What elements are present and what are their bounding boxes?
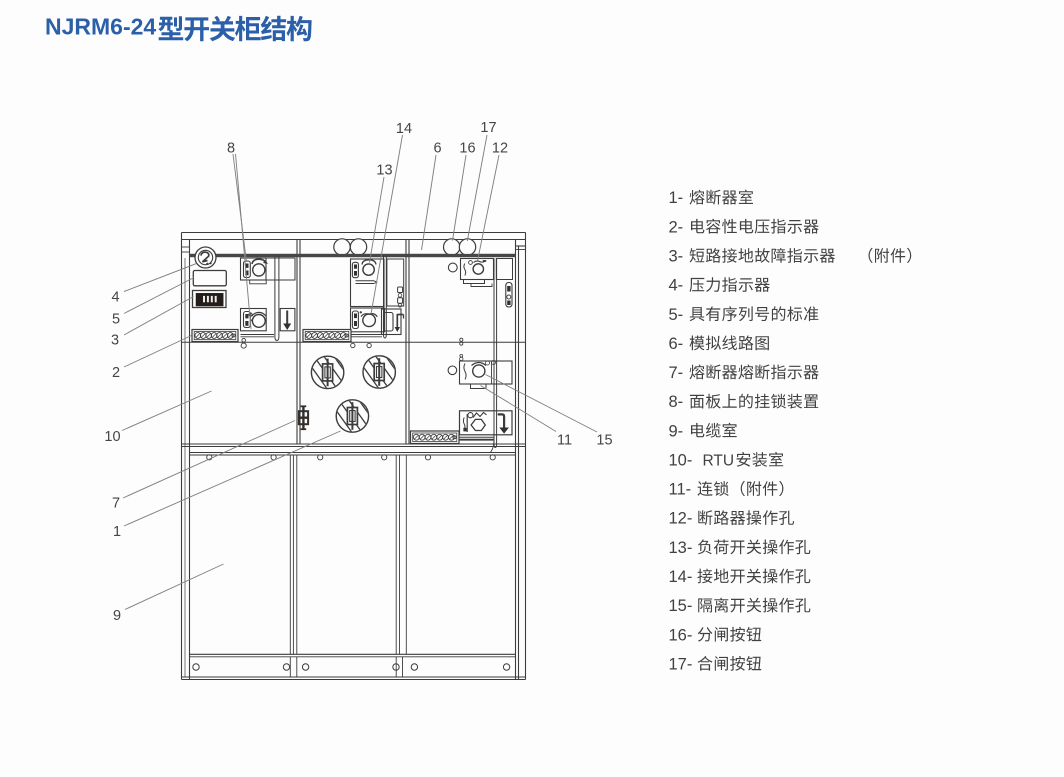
svg-text:6: 6 — [433, 141, 441, 157]
svg-text:5-: 5- — [669, 306, 684, 324]
svg-text:1-: 1- — [669, 189, 684, 207]
svg-text:6-: 6- — [669, 335, 684, 353]
svg-text:11-: 11- — [669, 481, 692, 499]
svg-text:14-: 14- — [669, 568, 693, 586]
svg-text:10-: 10- — [669, 452, 693, 470]
svg-text:10: 10 — [104, 429, 120, 445]
svg-text:11: 11 — [557, 433, 572, 449]
svg-text:12: 12 — [492, 141, 508, 157]
svg-text:9: 9 — [113, 608, 121, 624]
svg-text:5: 5 — [112, 312, 120, 328]
svg-text:3-: 3- — [669, 248, 684, 266]
svg-text:12-: 12- — [669, 510, 693, 528]
svg-text:RTU: RTU — [703, 453, 735, 470]
svg-text:NJRM6-24: NJRM6-24 — [45, 14, 156, 40]
svg-text:7: 7 — [112, 496, 120, 512]
svg-text:7-: 7- — [669, 364, 684, 382]
svg-text:8-: 8- — [669, 393, 684, 411]
svg-text:15: 15 — [596, 433, 612, 449]
svg-text:17-: 17- — [669, 655, 693, 673]
svg-text:16: 16 — [459, 141, 475, 157]
svg-text:2-: 2- — [669, 218, 684, 236]
svg-text:2: 2 — [112, 365, 120, 381]
svg-text:1: 1 — [113, 524, 121, 540]
svg-text:13-: 13- — [669, 539, 693, 557]
svg-text:13: 13 — [376, 163, 392, 179]
svg-text:8: 8 — [227, 141, 235, 157]
svg-text:16-: 16- — [669, 626, 693, 644]
svg-text:17: 17 — [480, 120, 496, 136]
svg-text:4: 4 — [111, 290, 119, 306]
svg-text:15-: 15- — [669, 597, 693, 615]
svg-text:3: 3 — [111, 333, 119, 349]
svg-text:4-: 4- — [669, 277, 684, 295]
svg-text:14: 14 — [396, 121, 412, 137]
svg-text:9-: 9- — [669, 422, 684, 440]
